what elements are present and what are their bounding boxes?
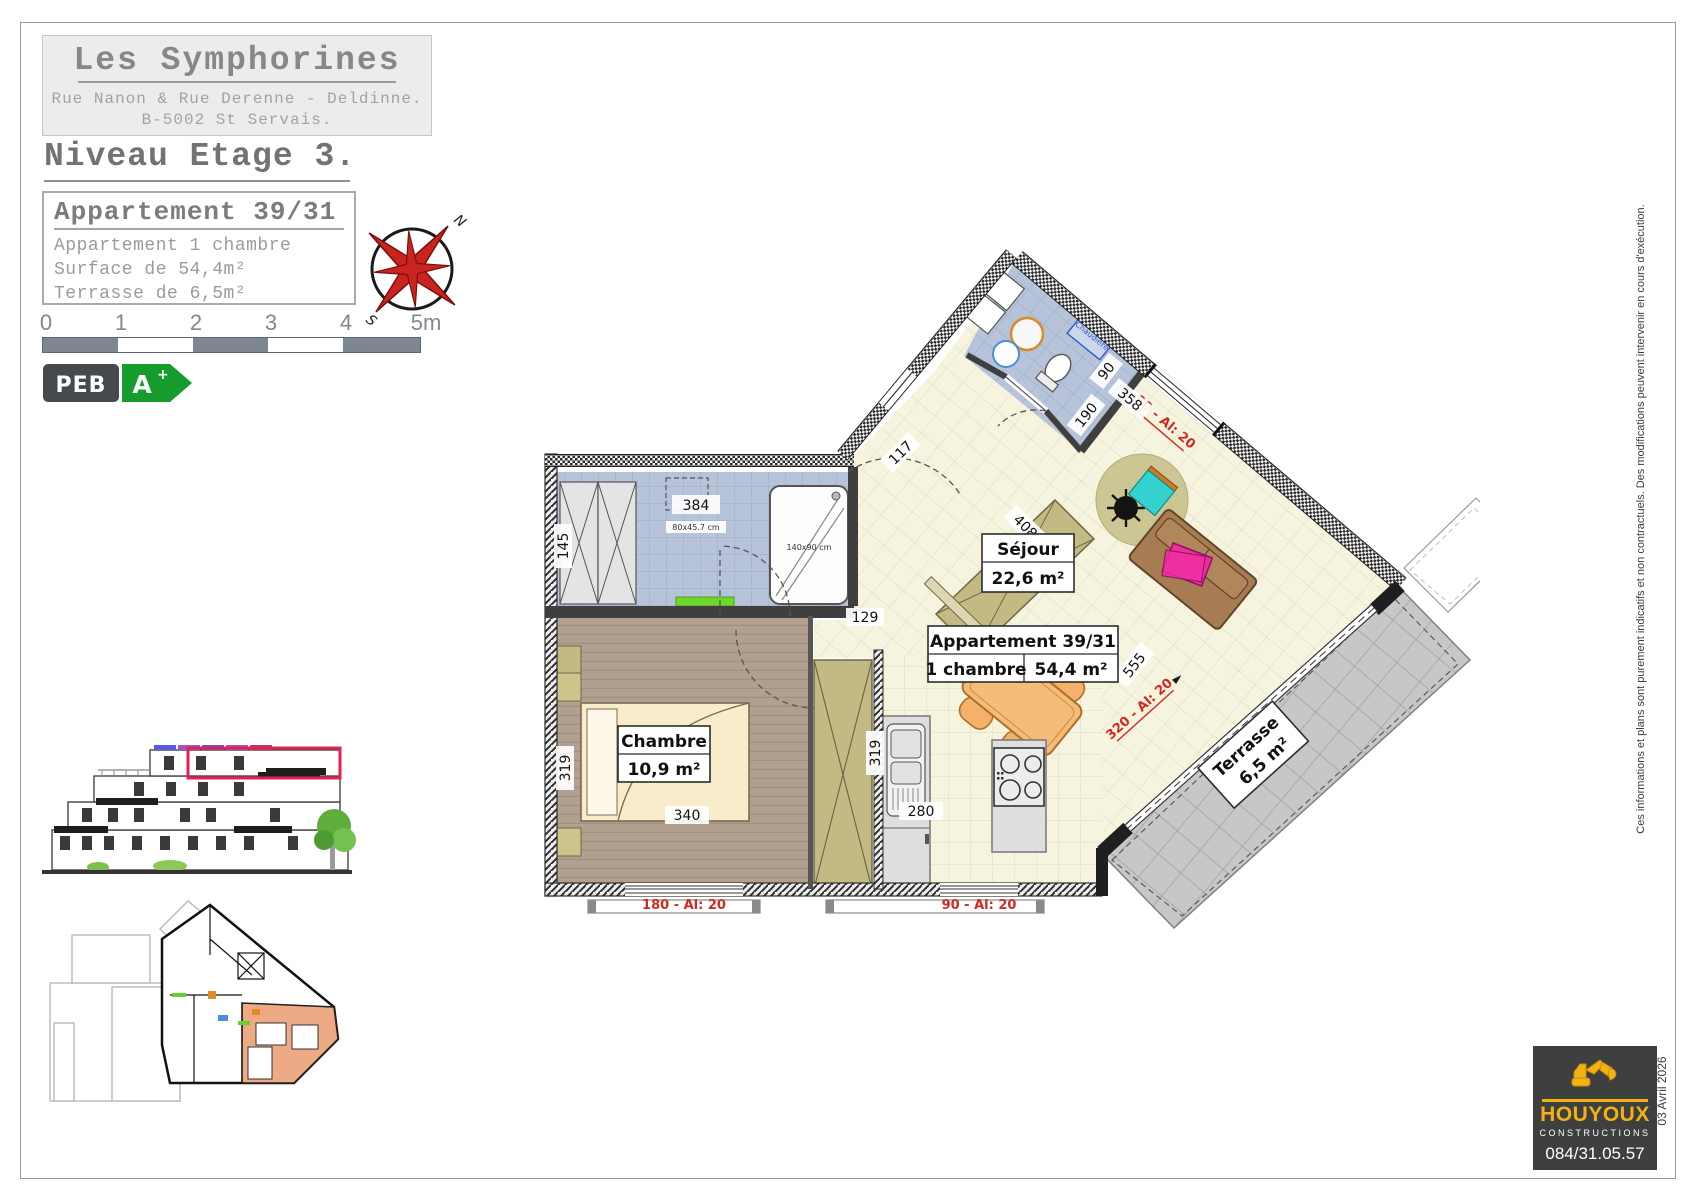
frame-bottom bbox=[20, 1178, 1676, 1179]
scale-tick-5: 5m bbox=[411, 310, 442, 336]
peb-label: PEB bbox=[56, 373, 107, 398]
logo-rule bbox=[1542, 1099, 1649, 1102]
dim-280: 280 bbox=[908, 804, 935, 820]
scale-tick-2: 2 bbox=[190, 310, 202, 336]
plan-date: 03 Avril 2026 bbox=[1655, 1036, 1669, 1146]
builder-logo: HOUYOUX CONSTRUCTIONS 084/31.05.57 bbox=[1533, 1046, 1657, 1170]
scale-tick-4: 4 bbox=[340, 310, 352, 336]
chambre-area: 10,9 m² bbox=[627, 760, 700, 780]
peb-badge: PEB A + bbox=[42, 363, 202, 405]
dim-340: 340 bbox=[674, 808, 701, 824]
apartment-card-line1: Appartement 1 chambre bbox=[54, 234, 344, 258]
scale-tick-1: 1 bbox=[115, 310, 127, 336]
peb-grade: A bbox=[132, 370, 152, 399]
chambre-name: Chambre bbox=[621, 732, 707, 752]
scale-bar: 0 1 2 3 4 5m bbox=[42, 310, 442, 353]
compass-north-label: N bbox=[450, 212, 469, 231]
logo-subtitle: CONSTRUCTIONS bbox=[1533, 1128, 1657, 1138]
project-title-box: Les Symphorines Rue Nanon & Rue Derenne … bbox=[42, 35, 432, 136]
disclaimer-text: Ces informations et plans sont purement … bbox=[1635, 89, 1649, 949]
project-address-2: B-5002 St Servais. bbox=[43, 110, 431, 131]
frame-top bbox=[20, 22, 1676, 23]
building-elevation bbox=[38, 730, 358, 890]
chambre-label: Chambre 10,9 m² bbox=[618, 726, 710, 782]
level-title: Niveau Etage 3. bbox=[44, 138, 356, 175]
apartment-card-title: Appartement 39/31 bbox=[54, 197, 344, 227]
peb-grade-plus: + bbox=[157, 367, 169, 383]
dim-384: 384 bbox=[683, 498, 710, 514]
apartment-tag: Appartement 39/31 1 chambre 54,4 m² bbox=[925, 626, 1118, 682]
sejour-name: Séjour bbox=[997, 540, 1059, 560]
window-label-bedroom: 180 - Al: 20 bbox=[642, 898, 726, 913]
bath-mat bbox=[676, 597, 734, 606]
floor-plan: 140x90 cm Chaudière bbox=[530, 248, 1480, 938]
scale-bar-ticks: 0 1 2 3 4 5m bbox=[42, 310, 442, 334]
excavator-icon bbox=[1566, 1052, 1624, 1092]
level-underline bbox=[44, 180, 350, 182]
scale-tick-3: 3 bbox=[265, 310, 277, 336]
project-address-1: Rue Nanon & Rue Derenne - Deldinne. bbox=[43, 89, 431, 110]
apartment-tag-title: Appartement 39/31 bbox=[930, 632, 1116, 652]
neighbour-terrace-outline bbox=[1404, 498, 1480, 612]
apartment-tag-rooms: 1 chambre bbox=[925, 660, 1026, 680]
scale-tick-0: 0 bbox=[40, 310, 52, 336]
plan-sheet: Les Symphorines Rue Nanon & Rue Derenne … bbox=[0, 0, 1697, 1200]
wardrobe bbox=[814, 660, 872, 889]
scale-bar-bars bbox=[42, 337, 421, 353]
kitchen-island bbox=[992, 740, 1046, 852]
frame-right bbox=[1675, 22, 1676, 1179]
dim-319-kitchen: 319 bbox=[868, 740, 884, 767]
project-name: Les Symphorines bbox=[43, 42, 431, 79]
apartment-card: Appartement 39/31 Appartement 1 chambre … bbox=[42, 191, 356, 305]
key-plan bbox=[42, 895, 357, 1127]
sejour-area: 22,6 m² bbox=[991, 569, 1064, 589]
window-label-kitchen: 90 - Al: 20 bbox=[942, 898, 1017, 913]
apartment-card-line3: Terrasse de 6,5m² bbox=[54, 282, 344, 306]
dim-129: 129 bbox=[852, 610, 879, 626]
logo-phone: 084/31.05.57 bbox=[1533, 1144, 1657, 1164]
apartment-card-line2: Surface de 54,4m² bbox=[54, 258, 344, 282]
dim-sink-size: 80x45.7 cm bbox=[672, 523, 720, 532]
frame-left bbox=[20, 22, 21, 1179]
title-underline bbox=[78, 81, 396, 83]
dim-319-bed: 319 bbox=[558, 755, 574, 782]
dim-145: 145 bbox=[556, 533, 572, 560]
apartment-tag-area: 54,4 m² bbox=[1034, 660, 1107, 680]
logo-name: HOUYOUX bbox=[1533, 1103, 1657, 1127]
shower: 140x90 cm bbox=[770, 486, 848, 604]
shower-size-label: 140x90 cm bbox=[787, 543, 832, 552]
sejour-label: Séjour 22,6 m² bbox=[982, 534, 1074, 592]
apartment-card-rule bbox=[54, 228, 344, 230]
washbasin-blue bbox=[993, 341, 1019, 367]
